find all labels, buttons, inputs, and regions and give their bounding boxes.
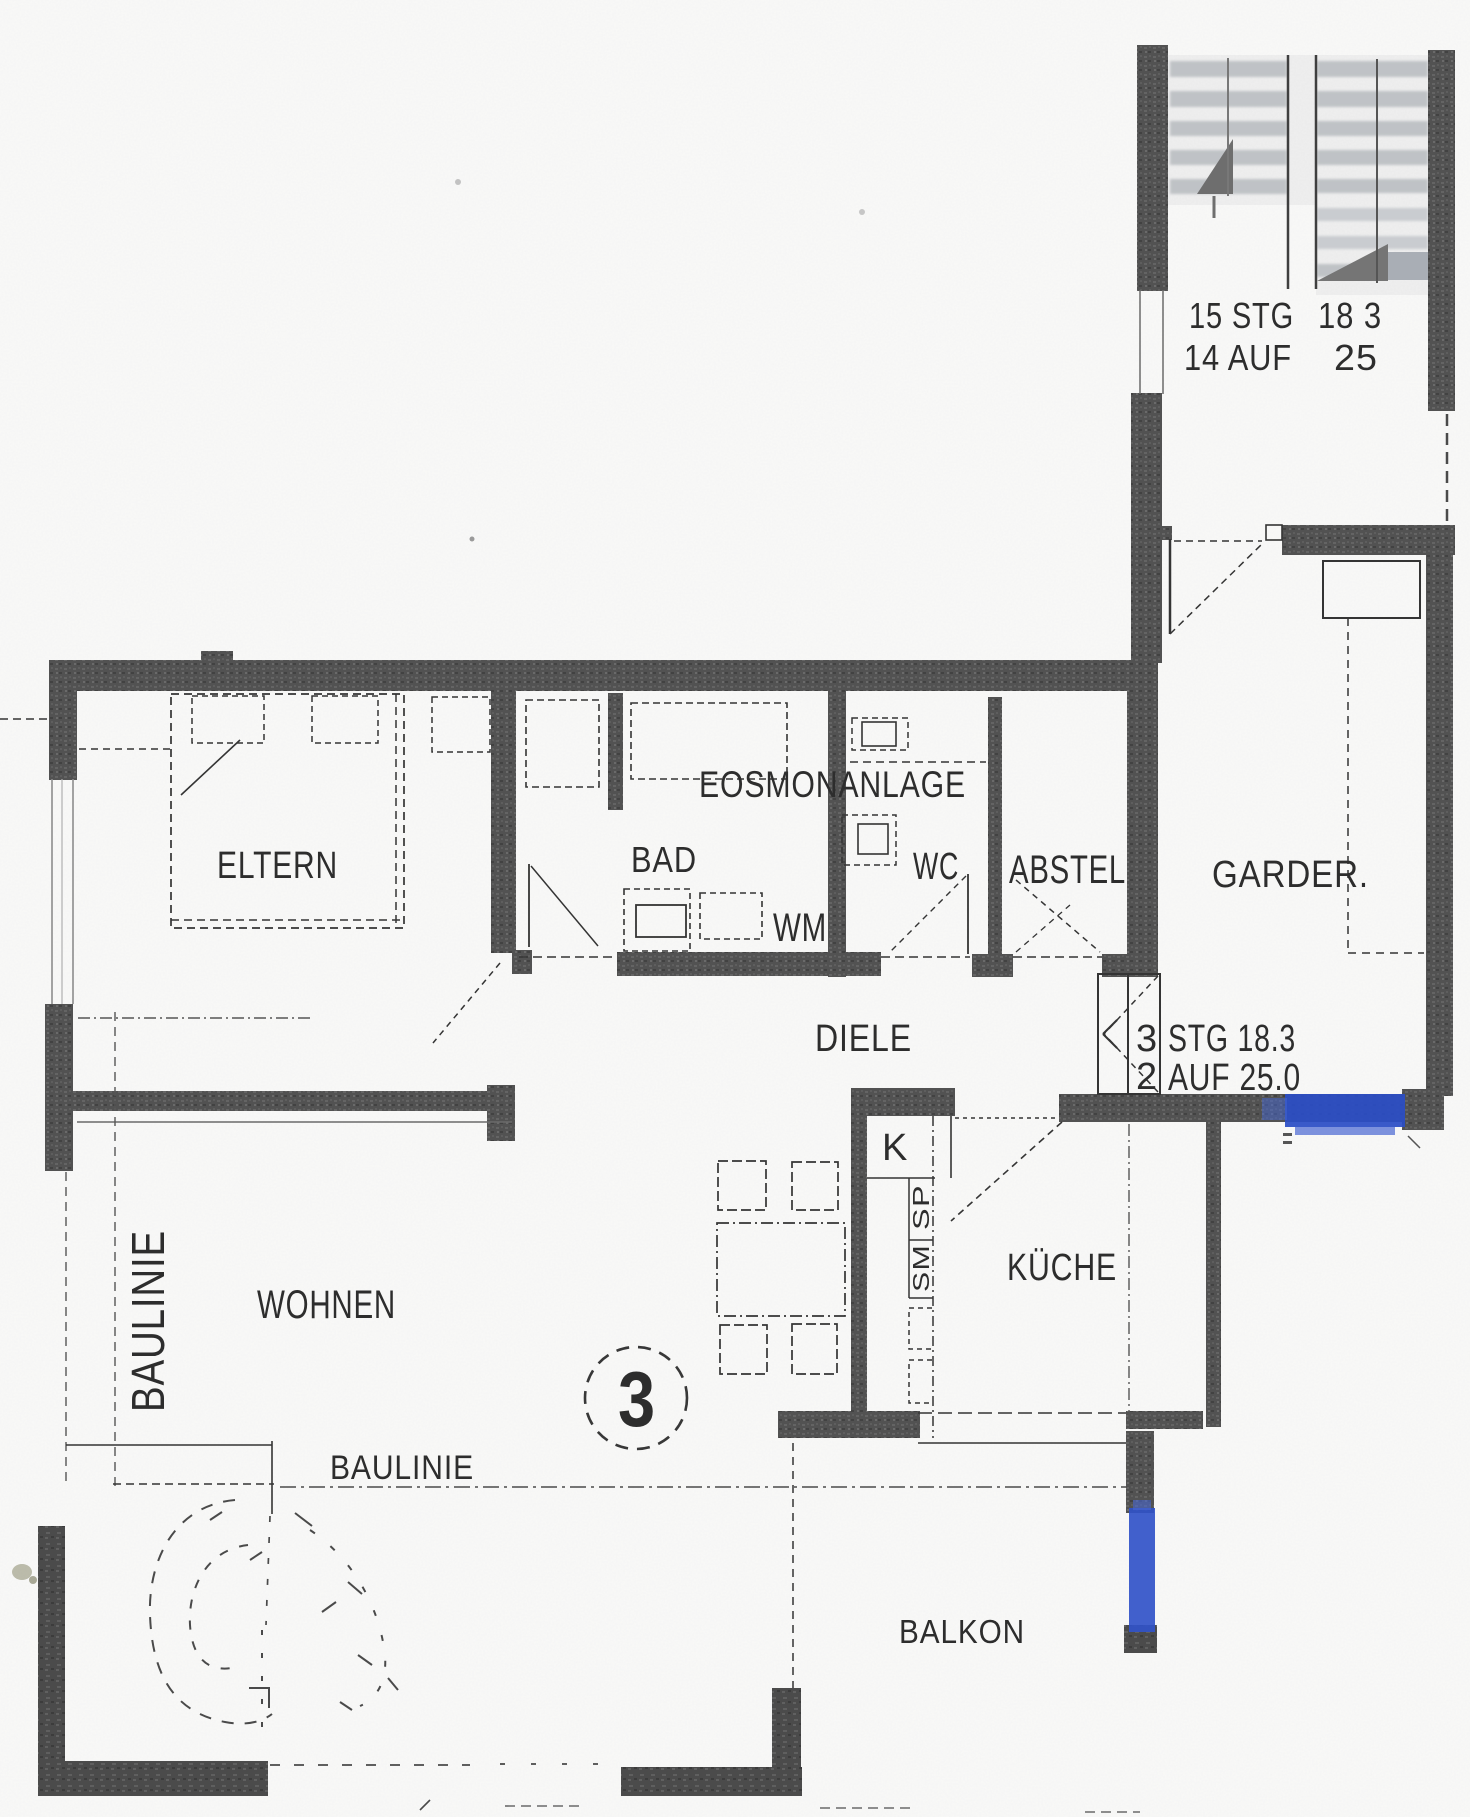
svg-text:SM: SM [908, 1244, 934, 1292]
svg-text:14 AUF: 14 AUF [1184, 337, 1292, 378]
svg-text:SP: SP [908, 1184, 934, 1230]
svg-text:WM: WM [773, 906, 827, 950]
svg-text:3: 3 [1136, 1018, 1158, 1060]
svg-text:AUF 25.0: AUF 25.0 [1168, 1057, 1301, 1099]
svg-text:WOHNEN: WOHNEN [257, 1283, 396, 1327]
svg-text:BAD: BAD [631, 839, 697, 880]
svg-text:18 3: 18 3 [1318, 295, 1382, 336]
svg-text:15 STG: 15 STG [1189, 295, 1294, 336]
svg-text:K: K [882, 1127, 908, 1169]
svg-text:2: 2 [1136, 1056, 1158, 1098]
svg-text:GARDER.: GARDER. [1212, 854, 1369, 896]
svg-text:EOSMONANLAGE: EOSMONANLAGE [699, 764, 966, 805]
svg-text:BALKON: BALKON [899, 1613, 1025, 1650]
svg-text:BAULINIE: BAULINIE [330, 1449, 474, 1487]
svg-text:3: 3 [618, 1355, 656, 1443]
svg-text:WC: WC [913, 846, 959, 888]
svg-text:25: 25 [1334, 337, 1378, 378]
svg-text:KÜCHE: KÜCHE [1007, 1247, 1117, 1289]
svg-text:ELTERN: ELTERN [217, 845, 338, 887]
svg-text:STG 18.3: STG 18.3 [1168, 1018, 1296, 1060]
svg-text:ABSTEL: ABSTEL [1009, 848, 1126, 892]
svg-text:DIELE: DIELE [815, 1018, 912, 1060]
svg-text:BAULINIE: BAULINIE [122, 1230, 174, 1412]
